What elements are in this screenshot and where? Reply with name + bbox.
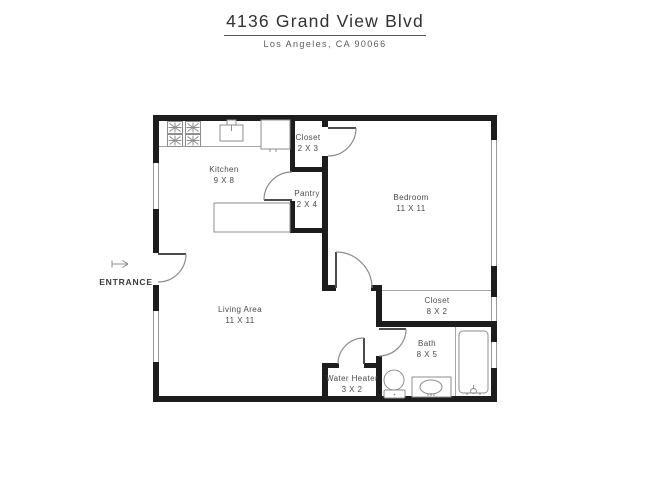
- entrance-arrow-icon: [112, 261, 128, 268]
- living-area-dims: 11 X 11: [218, 316, 262, 327]
- bedroom-closet-name: Closet: [424, 296, 449, 307]
- living-area-label: Living Area 11 X 11: [218, 305, 262, 326]
- bath-door: [379, 329, 406, 356]
- bath-dims: 8 X 5: [417, 350, 438, 361]
- plan-symbols: [0, 0, 650, 502]
- entry-closet-label: Closet 2 X 3: [295, 133, 320, 154]
- pantry-door: [264, 172, 292, 200]
- pantry-label: Pantry 2 X 4: [294, 189, 320, 210]
- bedroom-closet-label: Closet 8 X 2: [424, 296, 449, 317]
- living-area-name: Living Area: [218, 305, 262, 316]
- bedroom-label: Bedroom 11 X 11: [393, 193, 428, 214]
- vanity-sink-icon: [412, 377, 451, 397]
- kitchen-name: Kitchen: [209, 165, 238, 176]
- pantry-dims: 2 X 4: [294, 200, 320, 211]
- entrance-door: [158, 254, 186, 282]
- bedroom-closet-dims: 8 X 2: [424, 307, 449, 318]
- refrigerator-icon: [261, 120, 290, 152]
- kitchen-label: Kitchen 9 X 8: [209, 165, 238, 186]
- entry-closet-name: Closet: [295, 133, 320, 144]
- bedroom-door: [336, 252, 372, 288]
- bedroom-name: Bedroom: [393, 193, 428, 204]
- toilet-icon: [384, 370, 405, 398]
- water-heater-door: [338, 338, 364, 364]
- kitchen-dims: 9 X 8: [209, 176, 238, 187]
- water-heater-dims: 3 X 2: [326, 385, 378, 396]
- water-heater-name: Water Heater: [326, 374, 378, 385]
- water-heater-label: Water Heater 3 X 2: [326, 374, 378, 395]
- bath-label: Bath 8 X 5: [417, 339, 438, 360]
- bath-name: Bath: [417, 339, 438, 350]
- bathtub-icon: [459, 331, 488, 395]
- stove-burners-icon: [168, 122, 201, 147]
- floor-plan-sheet: 4136 Grand View Blvd Los Angeles, CA 900…: [0, 0, 650, 502]
- kitchen-island-icon: [214, 203, 290, 232]
- closet-door: [328, 128, 356, 156]
- pantry-name: Pantry: [294, 189, 320, 200]
- kitchen-sink-icon: [220, 120, 243, 141]
- floor-plan: Kitchen 9 X 8 Closet 2 X 3 Pantry 2 X 4 …: [0, 0, 650, 502]
- bedroom-dims: 11 X 11: [393, 204, 428, 215]
- entrance-label: ENTRANCE: [99, 277, 153, 287]
- entry-closet-dims: 2 X 3: [295, 144, 320, 155]
